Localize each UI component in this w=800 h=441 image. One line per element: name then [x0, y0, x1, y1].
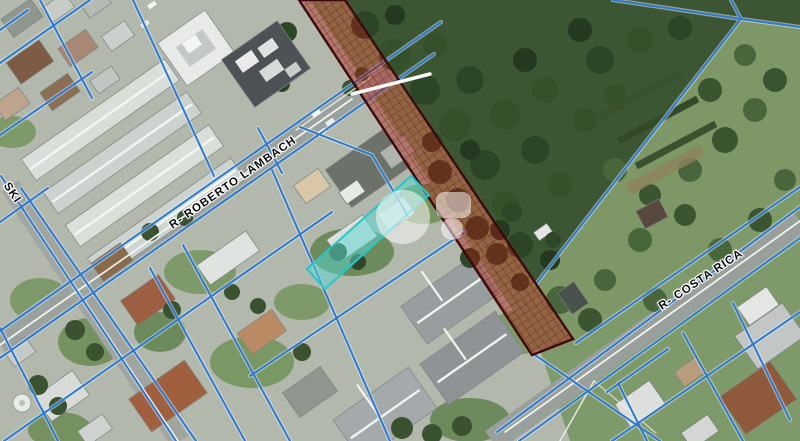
water-tank: [13, 394, 31, 412]
satellite-map-canvas[interactable]: R- ROBERTO LAMBACH R- COSTA RICA SKI: [0, 0, 800, 441]
